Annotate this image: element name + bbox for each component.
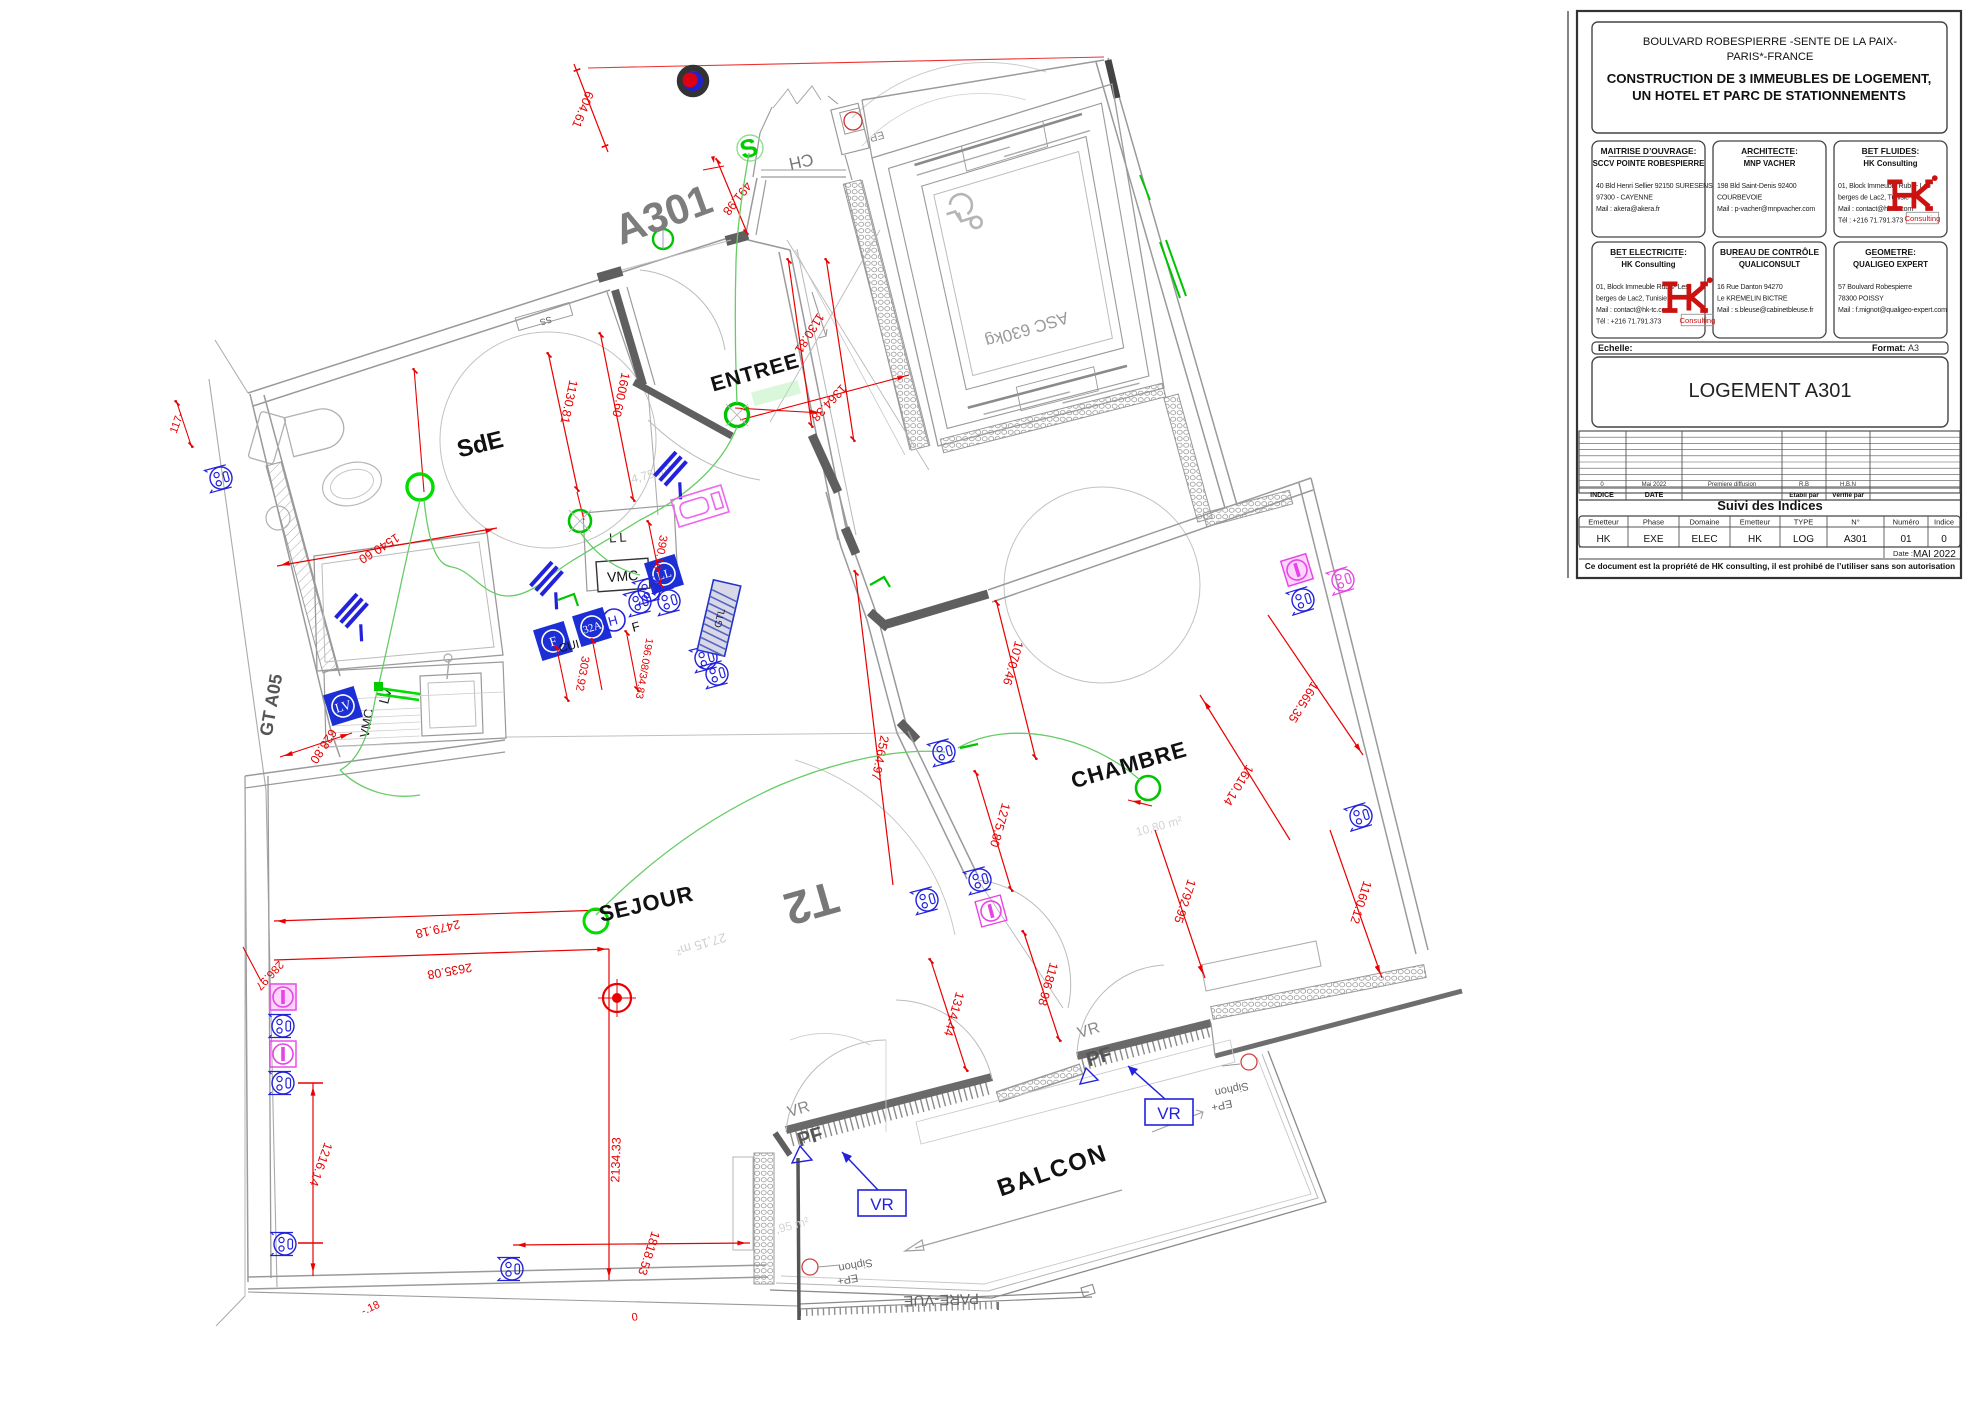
svg-text:Date :: Date :	[1893, 549, 1913, 558]
svg-text:H.B.N: H.B.N	[1840, 482, 1856, 488]
svg-text:Mail : contact@hk-tc.com: Mail : contact@hk-tc.com	[1596, 307, 1671, 314]
svg-text:QUALICONSULT: QUALICONSULT	[1739, 260, 1801, 269]
svg-text:97300 - CAYENNE: 97300 - CAYENNE	[1596, 195, 1653, 202]
svg-text:Emetteur: Emetteur	[1588, 518, 1619, 527]
svg-text:N°: N°	[1851, 518, 1859, 527]
svg-text:Tél : +216 71.791.373: Tél : +216 71.791.373	[1596, 319, 1661, 326]
svg-text:EXE: EXE	[1643, 534, 1663, 545]
svg-text:Echelle:: Echelle:	[1598, 343, 1633, 353]
svg-text:2134.33: 2134.33	[608, 1137, 624, 1183]
svg-text:VR: VR	[870, 1195, 894, 1214]
svg-text:Indice: Indice	[1934, 518, 1954, 527]
svg-text:01: 01	[1900, 534, 1912, 545]
svg-text:Emetteur: Emetteur	[1740, 518, 1771, 527]
svg-text:Mail : akera@akera.fr: Mail : akera@akera.fr	[1596, 206, 1661, 213]
svg-text:198 Bld Saint-Denis 92400: 198 Bld Saint-Denis 92400	[1717, 183, 1797, 190]
svg-text:PARIS*-FRANCE: PARIS*-FRANCE	[1727, 51, 1814, 63]
svg-text:Premiere diffusion: Premiere diffusion	[1708, 482, 1756, 488]
svg-text:HK: HK	[1748, 534, 1762, 545]
svg-text:Mail : s.bleuse@cabinetbleuse.: Mail : s.bleuse@cabinetbleuse.fr	[1717, 307, 1814, 314]
svg-text:Format:: Format:	[1872, 343, 1906, 353]
svg-text:MAITRISE D’OUVRAGE:: MAITRISE D’OUVRAGE:	[1601, 146, 1697, 156]
svg-text:MNP VACHER: MNP VACHER	[1744, 159, 1796, 168]
svg-text:40 Bld Henri Sellier 92150 SUR: 40 Bld Henri Sellier 92150 SURESENS	[1596, 183, 1713, 190]
svg-text:PARE-VUE: PARE-VUE	[903, 1290, 979, 1310]
svg-text:BUREAU DE CONTRÔLE: BUREAU DE CONTRÔLE	[1720, 246, 1820, 257]
svg-text:VR: VR	[1157, 1104, 1181, 1123]
svg-text:A3: A3	[1908, 343, 1919, 353]
svg-text:Consulting: Consulting	[1680, 316, 1716, 325]
svg-text:Vérifié par: Vérifié par	[1832, 492, 1864, 499]
svg-text:HK Consulting: HK Consulting	[1863, 159, 1917, 168]
svg-text:78300 POISSY: 78300 POISSY	[1838, 296, 1884, 303]
svg-text:01, Block Immeuble Rubis- Les: 01, Block Immeuble Rubis- Les	[1838, 183, 1931, 190]
svg-text:Consulting: Consulting	[1905, 214, 1941, 223]
svg-text:HK Consulting: HK Consulting	[1621, 260, 1675, 269]
svg-text:HK: HK	[1597, 534, 1611, 545]
svg-text:BET FLUIDES:: BET FLUIDES:	[1862, 146, 1920, 156]
svg-text:COURBEVOIE: COURBEVOIE	[1717, 195, 1763, 202]
svg-text:0: 0	[1941, 534, 1947, 545]
svg-text:BOULVARD ROBESPIERRE -SENTE DE: BOULVARD ROBESPIERRE -SENTE DE LA PAIX-	[1643, 36, 1898, 48]
svg-text:Phase: Phase	[1643, 518, 1664, 527]
svg-text:Suivi des Indices: Suivi des Indices	[1717, 498, 1823, 513]
svg-text:16 Rue Danton 94270: 16 Rue Danton 94270	[1717, 284, 1783, 291]
svg-text:Le KREMELIN BICTRE: Le KREMELIN BICTRE	[1717, 296, 1788, 303]
svg-text:Tél : +216 71.791.373: Tél : +216 71.791.373	[1838, 218, 1903, 225]
svg-text:GEOMETRE:: GEOMETRE:	[1865, 247, 1916, 257]
svg-text:berges de Lac2, Tunisie: berges de Lac2, Tunisie	[1596, 296, 1667, 303]
svg-text:Mail : p-vacher@mnpvacher.com: Mail : p-vacher@mnpvacher.com	[1717, 206, 1815, 213]
svg-text:DATE: DATE	[1645, 492, 1664, 499]
svg-text:57 Boulvard Robespierre: 57 Boulvard Robespierre	[1838, 284, 1912, 291]
svg-text:INDICE: INDICE	[1590, 492, 1614, 499]
svg-text:BET ELECTRICITE:: BET ELECTRICITE:	[1610, 247, 1687, 257]
svg-text:ARCHITECTE:: ARCHITECTE:	[1741, 146, 1798, 156]
svg-text:QUALIGEO EXPERT: QUALIGEO EXPERT	[1853, 260, 1928, 269]
svg-text:A301: A301	[1844, 534, 1868, 545]
svg-text:Domaine: Domaine	[1689, 518, 1719, 527]
svg-text:LOG: LOG	[1793, 534, 1814, 545]
svg-text:MAI 2022: MAI 2022	[1913, 549, 1956, 560]
svg-text:Numéro: Numéro	[1893, 518, 1920, 527]
svg-text:TYPE: TYPE	[1794, 518, 1814, 527]
svg-text:Ce document est la propriété d: Ce document est la propriété de HK consu…	[1585, 562, 1955, 571]
svg-text:Mai 2022: Mai 2022	[1642, 482, 1667, 488]
svg-text:SCCV POINTE ROBESPIERRE: SCCV POINTE ROBESPIERRE	[1593, 159, 1705, 168]
svg-text:R.B: R.B	[1799, 482, 1809, 488]
svg-text:CONSTRUCTION DE 3 IMMEUBLES DE: CONSTRUCTION DE 3 IMMEUBLES DE LOGEMENT,	[1607, 71, 1932, 86]
svg-text:UN HOTEL ET PARC DE STATIONNEM: UN HOTEL ET PARC DE STATIONNEMENTS	[1632, 88, 1906, 103]
svg-text:ELEC: ELEC	[1691, 534, 1717, 545]
svg-text:Mail : f.mignot@qualigeo-exper: Mail : f.mignot@qualigeo-expert.com	[1838, 307, 1947, 314]
svg-text:LOGEMENT A301: LOGEMENT A301	[1688, 380, 1851, 402]
